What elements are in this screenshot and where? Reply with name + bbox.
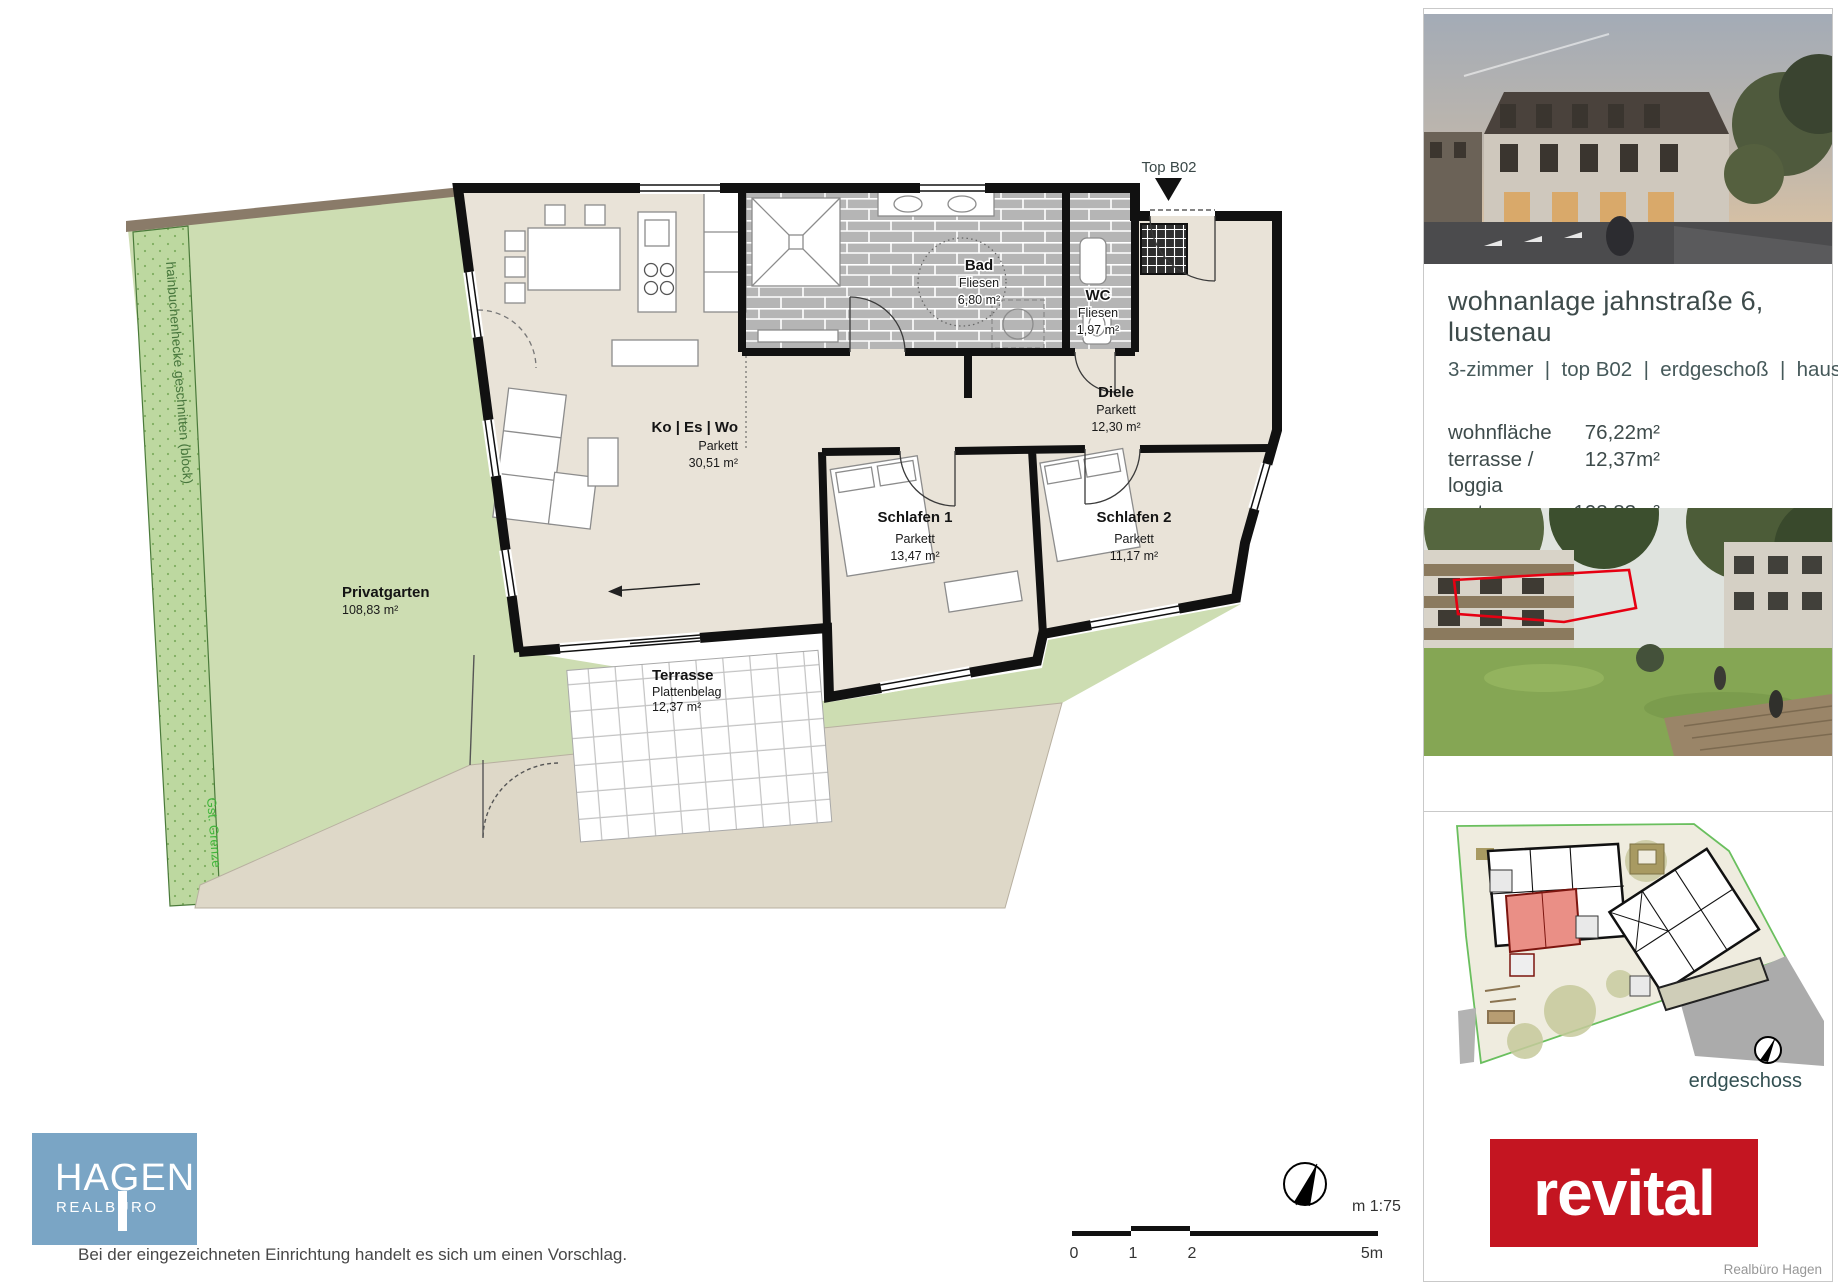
svg-text:Fliesen: Fliesen (1078, 306, 1118, 320)
room-label-terrasse: Terrasse (652, 667, 713, 684)
room-label-wc: WC (1086, 287, 1111, 304)
svg-text:108,83 m²: 108,83 m² (342, 603, 398, 617)
siteplan-compass-icon (1755, 1037, 1781, 1063)
svg-text:5m: 5m (1361, 1245, 1383, 1262)
scale-bar: 0 1 2 5m (1070, 1226, 1384, 1262)
svg-text:1: 1 (1129, 1245, 1138, 1262)
room-label-privatgarten: Privatgarten (342, 584, 430, 601)
svg-text:1,97 m²: 1,97 m² (1077, 323, 1119, 337)
revital-logo: revital (1490, 1139, 1758, 1247)
svg-text:12,37 m²: 12,37 m² (652, 700, 701, 714)
svg-text:Parkett: Parkett (1114, 532, 1154, 546)
entrance-label: Top B02 (1141, 159, 1196, 176)
revital-logo-text: revital (1533, 1161, 1715, 1225)
credit-text: Realbüro Hagen (1724, 1262, 1822, 1277)
svg-text:0: 0 (1070, 1245, 1079, 1262)
building-render-photo (1424, 14, 1832, 264)
siteplan-caption: erdgeschoss (1689, 1070, 1802, 1093)
entrance-arrow-icon (1155, 178, 1182, 201)
disclaimer-text: Bei der eingezeichneten Einrichtung hand… (78, 1245, 627, 1265)
room-label-bad: Bad (965, 257, 993, 274)
installation-shaft (1141, 224, 1187, 274)
svg-text:30,51 m²: 30,51 m² (689, 456, 738, 470)
sidebar: wohnanlage jahnstraße 6, lustenau 3-zimm… (1423, 8, 1833, 1282)
hagen-logo: HAGEN REALBÜRO (32, 1133, 197, 1245)
apartment-subtitle: 3-zimmer | top B02 | erdgeschoß | haus B (1448, 358, 1832, 382)
svg-text:Parkett: Parkett (1096, 403, 1136, 417)
entrance-marker: Top B02 (1141, 159, 1196, 201)
room-label-diele: Diele (1098, 384, 1134, 401)
highlighted-unit (1506, 889, 1580, 952)
garden-render-photo (1424, 508, 1832, 756)
room-label-schlafen1: Schlafen 1 (877, 509, 952, 526)
svg-text:6,80 m²: 6,80 m² (958, 293, 1000, 307)
north-compass-icon (1284, 1163, 1326, 1206)
svg-text:13,47 m²: 13,47 m² (890, 549, 939, 563)
svg-text:11,17 m²: 11,17 m² (1110, 549, 1158, 563)
brand-panel: revital Realbüro Hagen (1424, 1097, 1832, 1281)
svg-text:Plattenbelag: Plattenbelag (652, 685, 722, 699)
svg-text:Parkett: Parkett (895, 532, 935, 546)
scale-label: m 1:75 (1352, 1198, 1401, 1215)
page-title: wohnanlage jahnstraße 6, lustenau (1448, 286, 1832, 348)
table-row: wohnfläche76,22m² (1448, 420, 1660, 447)
siteplan-drawing (1430, 816, 1824, 1068)
svg-text:Parkett: Parkett (698, 439, 738, 453)
floorplan-sheet: Top B02 Ko | Es | Wo Parkett 30,51 m² Ba… (0, 0, 1838, 1285)
svg-text:12,30 m²: 12,30 m² (1091, 420, 1140, 434)
svg-text:2: 2 (1188, 1245, 1197, 1262)
room-label-schlafen2: Schlafen 2 (1096, 509, 1171, 526)
svg-text:Fliesen: Fliesen (959, 276, 999, 290)
hagen-logo-subtext: REALBÜRO (56, 1199, 159, 1216)
room-label-wohnen: Ko | Es | Wo (652, 419, 738, 436)
siteplan-panel: erdgeschoss (1424, 811, 1832, 1099)
table-row: terrasse / loggia12,37m² (1448, 447, 1660, 500)
floor-plan-drawing: Top B02 Ko | Es | Wo Parkett 30,51 m² Ba… (0, 0, 1420, 1285)
